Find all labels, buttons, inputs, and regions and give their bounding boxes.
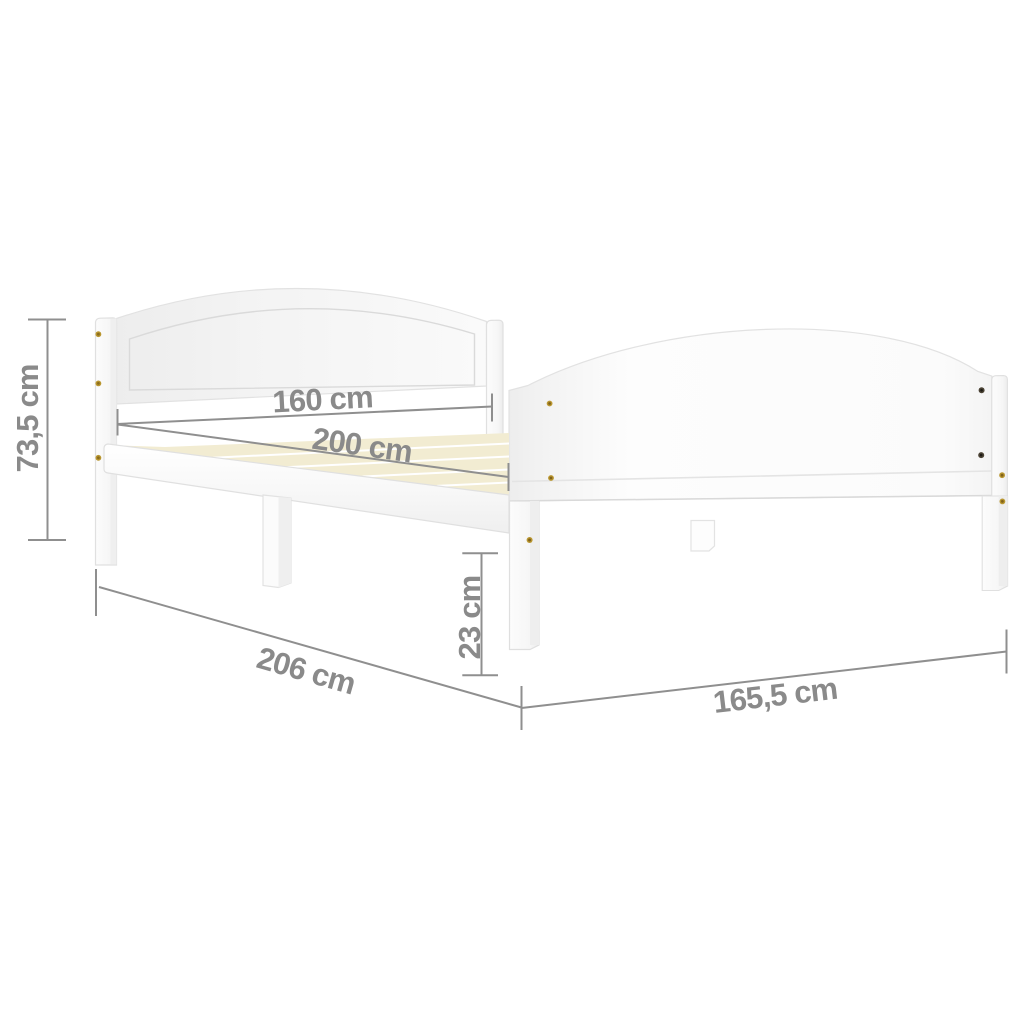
svg-text:23 cm: 23 cm bbox=[452, 576, 487, 660]
svg-text:160 cm: 160 cm bbox=[272, 379, 374, 419]
svg-text:73,5 cm: 73,5 cm bbox=[10, 364, 45, 472]
